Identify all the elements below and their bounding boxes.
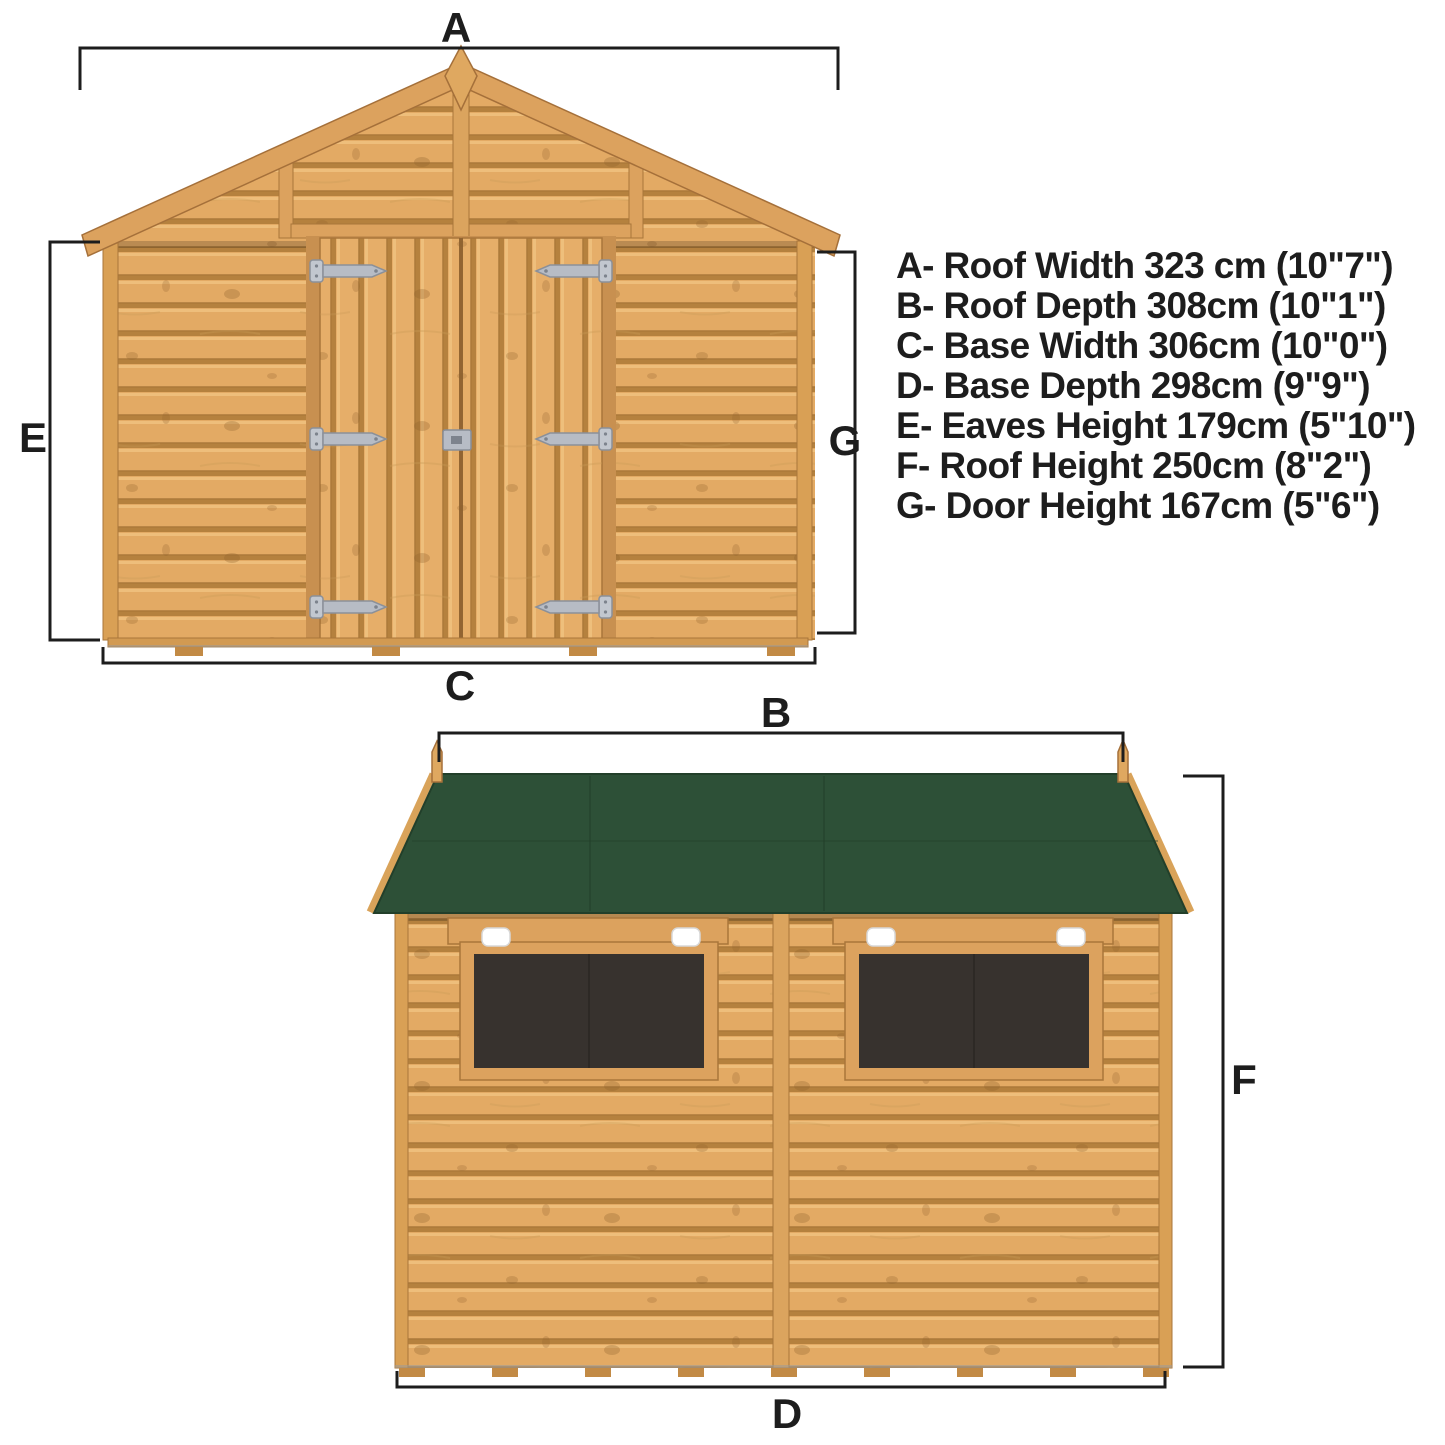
legend-line-roof-width: A- Roof Width 323 cm (10"7")	[896, 246, 1415, 286]
skid-foot	[492, 1368, 518, 1377]
dim-bracket-roof-height	[1183, 776, 1223, 1367]
legend-line-roof-height: F- Roof Height 250cm (8"2")	[896, 446, 1415, 486]
dim-bracket-base-width	[103, 647, 815, 663]
skid-foot	[864, 1368, 890, 1377]
skid-foot	[372, 647, 400, 656]
window-left	[448, 918, 728, 1080]
center-batten	[773, 913, 789, 1368]
legend-line-base-depth: D- Base Depth 298cm (9"9")	[896, 366, 1415, 406]
skid-foot	[1050, 1368, 1076, 1377]
legend-line-roof-depth: B- Roof Depth 308cm (10"1")	[896, 286, 1415, 326]
window-peg-icon	[867, 928, 895, 946]
dim-label-B: B	[761, 689, 791, 736]
dim-bracket-eaves-height	[50, 242, 100, 640]
skid-foot	[678, 1368, 704, 1377]
skid-foot	[957, 1368, 983, 1377]
skid-foot	[175, 647, 203, 656]
corner-batten	[103, 241, 118, 640]
window-peg-icon	[672, 928, 700, 946]
skid-foot	[585, 1368, 611, 1377]
dim-label-G: G	[829, 417, 862, 464]
corner-batten	[1159, 913, 1172, 1368]
side-base	[395, 1365, 1172, 1377]
skid-foot	[569, 647, 597, 656]
legend-line-door-height: G- Door Height 167cm (5"6")	[896, 486, 1415, 526]
legend-line-base-width: C- Base Width 306cm (10"0")	[896, 326, 1415, 366]
window-peg-icon	[482, 928, 510, 946]
door-latch-icon	[443, 430, 471, 450]
side-view: B D F	[370, 689, 1257, 1437]
window-right	[833, 918, 1113, 1080]
window-peg-icon	[1057, 928, 1085, 946]
dimension-legend: A- Roof Width 323 cm (10"7") B- Roof Dep…	[896, 246, 1415, 526]
dim-label-F: F	[1231, 1056, 1257, 1103]
shed-dimension-diagram: A E G C	[0, 0, 1445, 1445]
legend-line-eaves-height: E- Eaves Height 179cm (5"10")	[896, 406, 1415, 446]
dim-label-C: C	[445, 662, 475, 709]
dim-label-A: A	[441, 4, 471, 51]
dim-label-D: D	[772, 1390, 802, 1437]
front-doors	[306, 236, 616, 642]
front-base	[108, 638, 808, 656]
corner-batten	[395, 913, 408, 1368]
front-view: A E G C	[19, 4, 861, 709]
dim-label-E: E	[19, 414, 47, 461]
dim-bracket-roof-depth	[439, 733, 1123, 762]
skid-foot	[771, 1368, 797, 1377]
skid-foot	[767, 647, 795, 656]
side-roof	[370, 740, 1191, 913]
gable-center-post	[453, 90, 469, 238]
corner-batten	[797, 241, 812, 640]
skid-foot	[399, 1368, 425, 1377]
diagram-canvas: A E G C	[0, 0, 1445, 1445]
